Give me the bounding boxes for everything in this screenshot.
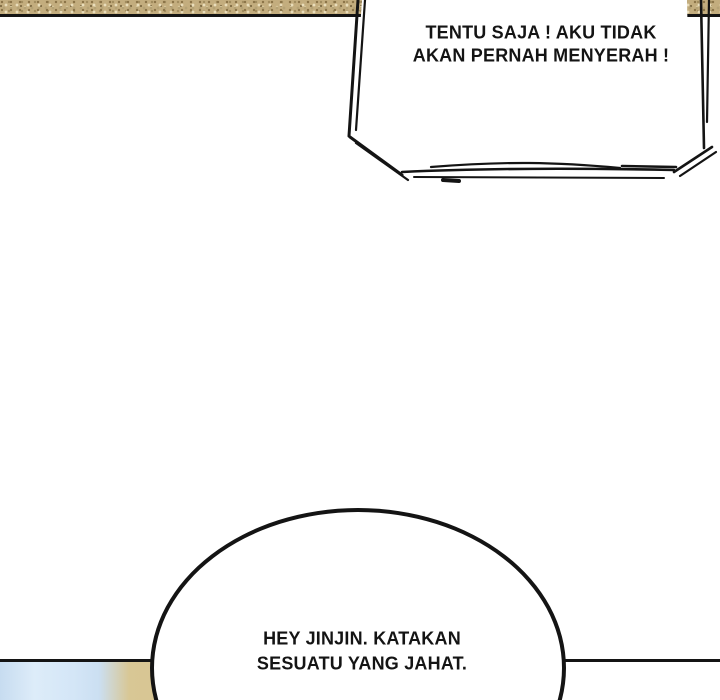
speech-line: AKAN PERNAH MENYERAH ! <box>395 43 687 67</box>
top-bubble-text: TENTU SAJA ! AKU TIDAK AKAN PERNAH MENYE… <box>395 21 687 67</box>
speech-line: SESUATU YANG JAHAT. <box>212 650 512 676</box>
speech-line: TENTU SAJA ! AKU TIDAK <box>395 20 687 44</box>
speech-line: HEY JINJIN. KATAKAN <box>212 625 512 651</box>
comic-page: TENTU SAJA ! AKU TIDAK AKAN PERNAH MENYE… <box>0 0 720 700</box>
bottom-bubble-text: HEY JINJIN. KATAKAN SESUATU YANG JAHAT. <box>212 626 512 676</box>
